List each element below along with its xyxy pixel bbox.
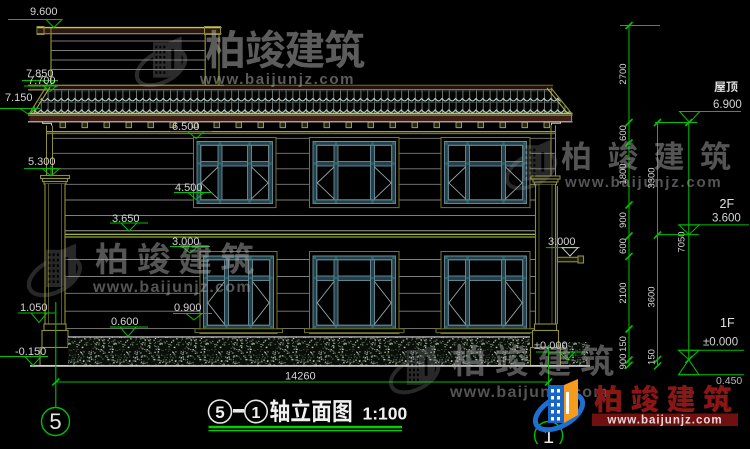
svg-text:150: 150 xyxy=(647,349,658,365)
svg-text:www.baijunjz.com: www.baijunjz.com xyxy=(606,415,722,427)
svg-text:14260: 14260 xyxy=(285,371,316,383)
svg-text:600: 600 xyxy=(618,238,629,254)
svg-text:±0.000: ±0.000 xyxy=(534,340,568,352)
svg-text:www.baijunjz.com: www.baijunjz.com xyxy=(199,71,355,88)
svg-text:3600: 3600 xyxy=(647,286,658,307)
svg-text:1:100: 1:100 xyxy=(363,404,408,424)
svg-text:1: 1 xyxy=(252,405,261,422)
svg-text:0.600: 0.600 xyxy=(111,316,139,328)
svg-text:5: 5 xyxy=(49,409,61,434)
svg-text:9.600: 9.600 xyxy=(30,6,58,18)
svg-text:0.900: 0.900 xyxy=(174,302,202,314)
svg-text:1F: 1F xyxy=(720,316,735,330)
svg-text:900: 900 xyxy=(618,212,629,228)
svg-text:7.150: 7.150 xyxy=(5,92,33,104)
svg-text:600: 600 xyxy=(618,125,629,141)
svg-text:2100: 2100 xyxy=(618,282,629,303)
svg-text:7.700: 7.700 xyxy=(28,75,56,87)
svg-text:3.000: 3.000 xyxy=(548,236,576,248)
svg-text:2700: 2700 xyxy=(618,63,629,84)
svg-text:5: 5 xyxy=(215,403,224,422)
svg-text:www.baijunjz.com: www.baijunjz.com xyxy=(92,279,252,296)
svg-text:3.600: 3.600 xyxy=(712,213,741,225)
svg-text:www.baijunjz.com: www.baijunjz.com xyxy=(449,384,609,401)
svg-text:150: 150 xyxy=(618,336,629,352)
svg-text:±0.000: ±0.000 xyxy=(703,336,738,348)
svg-text:6.900: 6.900 xyxy=(713,99,742,111)
svg-text:www.baijunjz.com: www.baijunjz.com xyxy=(564,174,722,191)
svg-text:1.050: 1.050 xyxy=(20,302,48,314)
svg-text:2F: 2F xyxy=(720,197,735,211)
svg-text:900: 900 xyxy=(618,354,629,370)
